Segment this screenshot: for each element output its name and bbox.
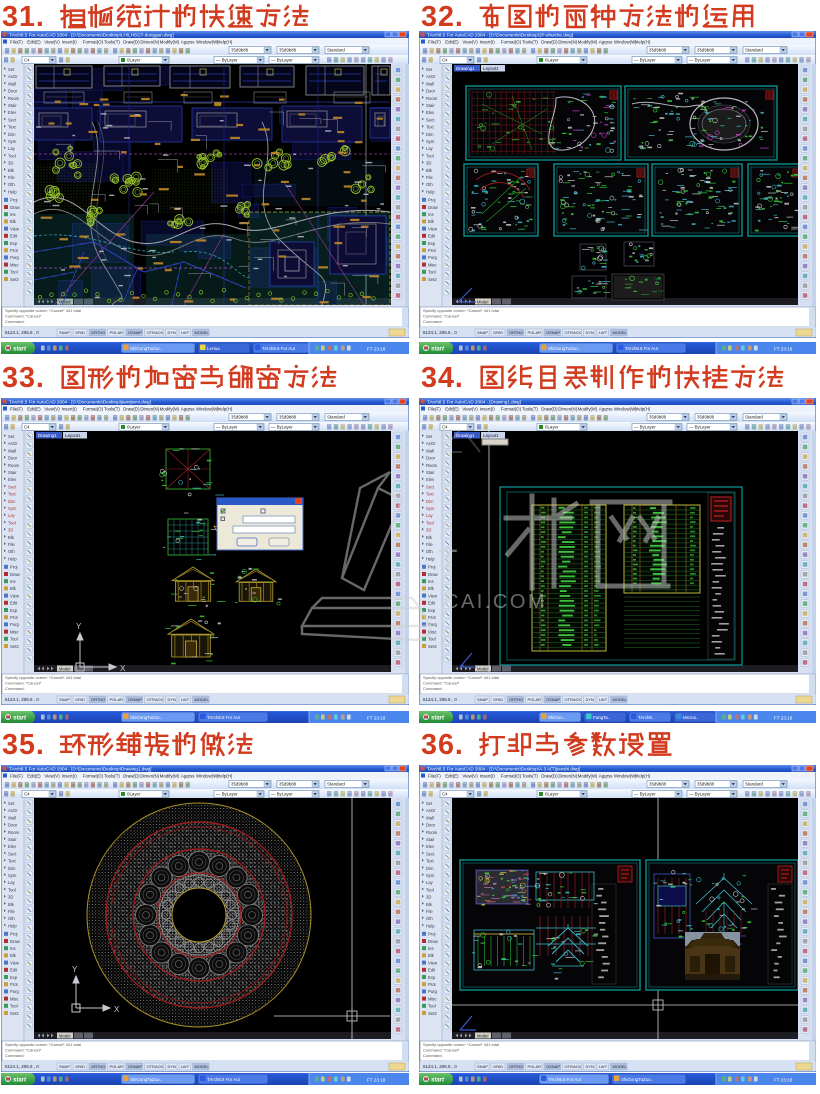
svg-text:Specify opposite corner: *Canc: Specify opposite corner: *Cancel* 441 to… bbox=[423, 675, 499, 680]
svg-text:Specify opposite corner: *Canc: Specify opposite corner: *Cancel* 441 to… bbox=[423, 1042, 499, 1047]
svg-text:Tool: Tool bbox=[426, 520, 434, 525]
svg-text:Help(H): Help(H) bbox=[217, 39, 233, 44]
svg-text:TArch8.5 For AutoCAD 2004 - [D: TArch8.5 For AutoCAD 2004 - [D:\Document… bbox=[427, 32, 573, 37]
svg-text:0Layer: 0Layer bbox=[545, 58, 559, 63]
svg-text:Elev: Elev bbox=[426, 110, 435, 115]
svg-text:Modify(M): Modify(M) bbox=[160, 773, 180, 778]
svg-text:Set3: Set3 bbox=[428, 1011, 437, 1016]
svg-text:Y: Y bbox=[76, 622, 82, 631]
svg-text:Specify opposite corner: *Canc: Specify opposite corner: *Cancel* 441 to… bbox=[423, 308, 499, 313]
svg-text:Dim: Dim bbox=[8, 866, 16, 871]
svg-text:Blk: Blk bbox=[428, 586, 435, 591]
svg-text:Edit: Edit bbox=[10, 601, 18, 606]
svg-text:ShiGon..: ShiGon.. bbox=[548, 715, 565, 720]
svg-text:Blk: Blk bbox=[8, 535, 15, 540]
svg-text:FT 23:18: FT 23:18 bbox=[774, 1077, 793, 1082]
svg-text:ORTHO: ORTHO bbox=[91, 697, 105, 702]
svg-text:Blk: Blk bbox=[426, 168, 433, 173]
svg-text:0Layer: 0Layer bbox=[127, 58, 141, 63]
svg-text:SNAP: SNAP bbox=[477, 1064, 488, 1069]
svg-text:Wall: Wall bbox=[8, 448, 16, 453]
svg-text:File: File bbox=[8, 175, 15, 180]
svg-text:Proj: Proj bbox=[428, 932, 436, 937]
svg-text:6124.1, 206.6 , 0: 6124.1, 206.6 , 0 bbox=[423, 1064, 457, 1069]
svg-text:Elev: Elev bbox=[8, 110, 17, 115]
svg-text:6124.1, 206.6 , 0: 6124.1, 206.6 , 0 bbox=[5, 697, 39, 702]
svg-text:Misc: Misc bbox=[10, 996, 19, 1001]
svg-text:Tool: Tool bbox=[428, 270, 436, 275]
svg-text:MODEL: MODEL bbox=[195, 697, 210, 702]
svg-text:Blk: Blk bbox=[8, 168, 15, 173]
svg-text:OSNAP: OSNAP bbox=[128, 697, 142, 702]
svg-text:DYN: DYN bbox=[168, 1064, 177, 1069]
svg-text:Tools(T): Tools(T) bbox=[104, 773, 120, 778]
svg-text:Exp: Exp bbox=[428, 241, 436, 246]
svg-text:— ByLayer: — ByLayer bbox=[216, 58, 238, 63]
svg-text:Blk: Blk bbox=[10, 953, 17, 958]
svg-text:Proj: Proj bbox=[428, 198, 436, 203]
svg-text:Help(H): Help(H) bbox=[635, 406, 651, 411]
svg-text:View(V): View(V) bbox=[462, 773, 478, 778]
svg-text:GRID: GRID bbox=[493, 697, 503, 702]
svg-text:Set3: Set3 bbox=[428, 644, 437, 649]
svg-text:ShiGongTuZuo..: ShiGongTuZuo.. bbox=[130, 346, 162, 351]
svg-text:Insert(I): Insert(I) bbox=[62, 406, 78, 411]
svg-text:0Layer: 0Layer bbox=[545, 792, 559, 797]
svg-text:Dim: Dim bbox=[8, 499, 16, 504]
svg-text:File: File bbox=[8, 909, 15, 914]
svg-text:TArch8.5 For AutoCAD 2004 - [D: TArch8.5 For AutoCAD 2004 - [D:\Document… bbox=[427, 766, 580, 771]
svg-text:Door: Door bbox=[426, 823, 436, 828]
svg-text:Dimen(N): Dimen(N) bbox=[558, 773, 577, 778]
svg-text:Draw: Draw bbox=[10, 205, 21, 210]
svg-text:Exp: Exp bbox=[428, 608, 436, 613]
svg-text:OTRACK: OTRACK bbox=[147, 330, 164, 335]
svg-text:— ByLayer: — ByLayer bbox=[689, 58, 711, 63]
svg-text:Window(W): Window(W) bbox=[196, 406, 219, 411]
svg-text:SNAP: SNAP bbox=[59, 1064, 70, 1069]
svg-text:Draw: Draw bbox=[10, 939, 21, 944]
svg-text:35d9b88: 35d9b88 bbox=[649, 48, 667, 53]
svg-text:start: start bbox=[431, 716, 445, 722]
svg-text:Help(H): Help(H) bbox=[635, 773, 651, 778]
svg-text:Agqrss: Agqrss bbox=[181, 406, 195, 411]
svg-text:Exp: Exp bbox=[10, 608, 18, 613]
svg-text:LvHua: LvHua bbox=[207, 346, 220, 351]
svg-text:Command: *Cancel*: Command: *Cancel* bbox=[423, 314, 460, 319]
svg-text:Command: *Cancel*: Command: *Cancel* bbox=[5, 681, 42, 686]
svg-text:Format(O): Format(O) bbox=[501, 773, 522, 778]
svg-text:Room: Room bbox=[8, 96, 20, 101]
svg-text:Draw(D): Draw(D) bbox=[541, 773, 558, 778]
svg-text:3D: 3D bbox=[426, 895, 431, 900]
svg-text:Purg: Purg bbox=[428, 622, 438, 627]
svg-text:33.: 33. bbox=[2, 363, 45, 393]
svg-text:Edit: Edit bbox=[428, 968, 436, 973]
svg-text:Blk: Blk bbox=[428, 953, 435, 958]
svg-text:35d9b88: 35d9b88 bbox=[231, 415, 249, 420]
svg-text:DYN: DYN bbox=[586, 1064, 595, 1069]
svg-text:Lay: Lay bbox=[426, 513, 434, 518]
svg-text:Elev: Elev bbox=[8, 844, 17, 849]
svg-text:Sym: Sym bbox=[8, 139, 17, 144]
svg-text:— ByLayer: — ByLayer bbox=[634, 425, 656, 430]
svg-text:Draw: Draw bbox=[428, 939, 439, 944]
svg-text:Agqrss: Agqrss bbox=[599, 406, 613, 411]
svg-text:Dim: Dim bbox=[426, 132, 434, 137]
svg-text:POLAR: POLAR bbox=[528, 697, 542, 702]
svg-text:35d9b88: 35d9b88 bbox=[279, 48, 297, 53]
svg-text:Help(H): Help(H) bbox=[217, 773, 233, 778]
svg-text:SNAP: SNAP bbox=[477, 697, 488, 702]
svg-text:Edit: Edit bbox=[10, 968, 18, 973]
svg-text:35d9b88: 35d9b88 bbox=[649, 782, 667, 787]
svg-text:POLAR: POLAR bbox=[528, 330, 542, 335]
svg-text:X: X bbox=[114, 1005, 120, 1014]
svg-text:LWT: LWT bbox=[181, 697, 190, 702]
svg-text:View: View bbox=[428, 593, 438, 598]
svg-text:FT 23:18: FT 23:18 bbox=[367, 1077, 386, 1082]
svg-text:Command:: Command: bbox=[5, 1053, 25, 1058]
svg-text:OSNAP: OSNAP bbox=[128, 330, 142, 335]
svg-text:Draw: Draw bbox=[10, 572, 21, 577]
svg-text:Layout1: Layout1 bbox=[483, 433, 499, 438]
svg-text:— ByLayer: — ByLayer bbox=[689, 792, 711, 797]
svg-text:C4: C4 bbox=[442, 425, 448, 430]
svg-text:Draw: Draw bbox=[428, 205, 439, 210]
svg-text:OSNAP: OSNAP bbox=[128, 1064, 142, 1069]
svg-text:Tools(T): Tools(T) bbox=[522, 773, 538, 778]
svg-text:Text: Text bbox=[426, 125, 435, 130]
svg-text:Elev: Elev bbox=[8, 477, 17, 482]
svg-text:Command:: Command: bbox=[423, 686, 443, 691]
svg-text:Tool: Tool bbox=[8, 887, 16, 892]
svg-text:Misc: Misc bbox=[10, 262, 19, 267]
svg-text:Dim: Dim bbox=[8, 132, 16, 137]
svg-text:Prot: Prot bbox=[10, 248, 19, 253]
svg-text:ORTHO: ORTHO bbox=[509, 697, 523, 702]
svg-text:Edit(E): Edit(E) bbox=[445, 39, 459, 44]
svg-text:Proj: Proj bbox=[428, 565, 436, 570]
svg-text:Room: Room bbox=[8, 830, 20, 835]
svg-text:Oth: Oth bbox=[8, 916, 15, 921]
svg-text:35d9b88: 35d9b88 bbox=[279, 415, 297, 420]
svg-text:36.: 36. bbox=[421, 730, 464, 760]
svg-text:Oth: Oth bbox=[426, 549, 433, 554]
svg-text:POLAR: POLAR bbox=[110, 1064, 124, 1069]
svg-text:Set3: Set3 bbox=[10, 1011, 19, 1016]
svg-text:35.: 35. bbox=[2, 730, 45, 760]
svg-text:Blk: Blk bbox=[426, 902, 433, 907]
svg-text:Agqrss: Agqrss bbox=[181, 39, 195, 44]
svg-text:Window(W): Window(W) bbox=[614, 406, 637, 411]
svg-text:Tool: Tool bbox=[10, 637, 18, 642]
svg-text:Tool: Tool bbox=[426, 153, 434, 158]
svg-text:Set: Set bbox=[8, 434, 15, 439]
svg-text:LWT: LWT bbox=[599, 330, 608, 335]
svg-text:AxGr: AxGr bbox=[426, 441, 436, 446]
svg-text:View: View bbox=[428, 226, 438, 231]
svg-text:Purg: Purg bbox=[10, 255, 20, 260]
svg-text:Draw: Draw bbox=[428, 572, 439, 577]
svg-text:Lay: Lay bbox=[8, 513, 16, 518]
svg-text:Purg: Purg bbox=[10, 989, 20, 994]
svg-text:ShiGongTuZuo..: ShiGongTuZuo.. bbox=[130, 715, 162, 720]
svg-text:Command:: Command: bbox=[423, 319, 443, 324]
svg-text:Dim: Dim bbox=[426, 866, 434, 871]
svg-text:File(F): File(F) bbox=[428, 406, 441, 411]
svg-text:Help: Help bbox=[8, 189, 17, 194]
svg-text:Door: Door bbox=[8, 456, 18, 461]
svg-text:Insert(I): Insert(I) bbox=[480, 406, 496, 411]
svg-text:Edit: Edit bbox=[428, 601, 436, 606]
svg-text:3D: 3D bbox=[426, 528, 431, 533]
svg-text:Sym: Sym bbox=[426, 139, 435, 144]
svg-text:Edit(E): Edit(E) bbox=[27, 406, 41, 411]
svg-text:ORTHO: ORTHO bbox=[509, 330, 523, 335]
svg-text:Standard: Standard bbox=[745, 48, 763, 53]
svg-text:SNAP: SNAP bbox=[477, 330, 488, 335]
svg-text:Prot: Prot bbox=[428, 982, 437, 987]
svg-text:Ins: Ins bbox=[428, 579, 434, 584]
svg-text:Sect: Sect bbox=[426, 117, 435, 122]
svg-text:Tool: Tool bbox=[8, 520, 16, 525]
svg-text:Window(W): Window(W) bbox=[614, 773, 637, 778]
svg-text:Blk: Blk bbox=[10, 586, 17, 591]
svg-text:TArch8.5 For AutoCAD 2004 - [D: TArch8.5 For AutoCAD 2004 - [D:\Document… bbox=[9, 399, 151, 404]
svg-text:File(F): File(F) bbox=[428, 39, 441, 44]
svg-text:Draw(D): Draw(D) bbox=[123, 39, 140, 44]
svg-text:DYN: DYN bbox=[168, 697, 177, 702]
svg-text:Tool: Tool bbox=[10, 1004, 18, 1009]
svg-text:Text: Text bbox=[8, 492, 17, 497]
svg-text:FangTa..: FangTa.. bbox=[593, 715, 610, 720]
svg-text:Blk: Blk bbox=[426, 535, 433, 540]
svg-text:Format(O): Format(O) bbox=[501, 406, 522, 411]
svg-text:Standard: Standard bbox=[327, 782, 345, 787]
svg-text:File(F): File(F) bbox=[10, 773, 23, 778]
svg-text:Help: Help bbox=[426, 556, 435, 561]
svg-text:Format(O): Format(O) bbox=[83, 406, 104, 411]
svg-text:6124.1, 206.6 , 0: 6124.1, 206.6 , 0 bbox=[5, 1064, 39, 1069]
svg-text:TArch8..: TArch8.. bbox=[638, 715, 654, 720]
svg-text:Layout1: Layout1 bbox=[483, 66, 499, 71]
svg-text:Proj: Proj bbox=[10, 565, 18, 570]
svg-text:Layout1: Layout1 bbox=[65, 433, 81, 438]
svg-text:Tool: Tool bbox=[428, 637, 436, 642]
svg-text:Set: Set bbox=[8, 67, 15, 72]
svg-text:OSNAP: OSNAP bbox=[546, 697, 560, 702]
svg-text:Edit(E): Edit(E) bbox=[27, 39, 41, 44]
svg-text:— ByLayer: — ByLayer bbox=[271, 425, 293, 430]
svg-text:ORTHO: ORTHO bbox=[91, 330, 105, 335]
svg-text:File(F): File(F) bbox=[428, 773, 441, 778]
svg-text:TArch8.5 For Aut: TArch8.5 For Aut bbox=[207, 715, 241, 720]
svg-text:GRID: GRID bbox=[75, 1064, 85, 1069]
svg-text:start: start bbox=[431, 1078, 445, 1084]
svg-text:OTRACK: OTRACK bbox=[147, 697, 164, 702]
svg-text:Modify(M): Modify(M) bbox=[578, 406, 598, 411]
svg-text:LWT: LWT bbox=[599, 1064, 608, 1069]
svg-text:32.: 32. bbox=[421, 2, 464, 32]
svg-text:Edit: Edit bbox=[10, 234, 18, 239]
svg-text:Command: *Cancel*: Command: *Cancel* bbox=[5, 314, 42, 319]
svg-text:— ByLayer: — ByLayer bbox=[634, 792, 656, 797]
svg-text:Stair: Stair bbox=[426, 837, 435, 842]
svg-text:Edit(E): Edit(E) bbox=[27, 773, 41, 778]
svg-text:Wall: Wall bbox=[426, 448, 434, 453]
svg-text:Oth: Oth bbox=[426, 182, 433, 187]
svg-text:start: start bbox=[13, 716, 27, 722]
svg-text:6124.1, 206.6 , 0: 6124.1, 206.6 , 0 bbox=[5, 330, 39, 335]
svg-text:Help(H): Help(H) bbox=[635, 39, 651, 44]
svg-text:Dimen(N): Dimen(N) bbox=[140, 406, 159, 411]
svg-text:Specify opposite corner: *Canc: Specify opposite corner: *Cancel* 441 to… bbox=[5, 308, 81, 313]
svg-text:TArch8.5 For Aut: TArch8.5 For Aut bbox=[548, 1077, 582, 1082]
svg-text:Drawing1: Drawing1 bbox=[38, 433, 57, 438]
svg-text:34.: 34. bbox=[421, 363, 464, 393]
svg-text:Command:: Command: bbox=[423, 1053, 443, 1058]
svg-text:X: X bbox=[120, 664, 126, 672]
svg-text:— ByLayer: — ByLayer bbox=[271, 58, 293, 63]
svg-text:Purg: Purg bbox=[428, 255, 438, 260]
svg-text:Help(H): Help(H) bbox=[217, 406, 233, 411]
svg-text:DYN: DYN bbox=[168, 330, 177, 335]
svg-text:Purg: Purg bbox=[428, 989, 438, 994]
svg-text:35d9b88: 35d9b88 bbox=[649, 415, 667, 420]
svg-text:File: File bbox=[426, 542, 433, 547]
svg-text:start: start bbox=[431, 347, 445, 353]
svg-text:Exp: Exp bbox=[10, 241, 18, 246]
svg-text:Misc: Misc bbox=[10, 629, 19, 634]
svg-text:FT 23:18: FT 23:18 bbox=[367, 346, 386, 351]
svg-text:Wall: Wall bbox=[426, 81, 434, 86]
svg-text:Standard: Standard bbox=[745, 415, 763, 420]
svg-text:ORTHO: ORTHO bbox=[509, 1064, 523, 1069]
svg-text:Sym: Sym bbox=[8, 506, 17, 511]
svg-text:Modify(M): Modify(M) bbox=[578, 39, 598, 44]
svg-text:Blk: Blk bbox=[10, 219, 17, 224]
svg-text:ORTHO: ORTHO bbox=[91, 1064, 105, 1069]
svg-text:Door: Door bbox=[8, 823, 18, 828]
svg-text:ShiGongTuZuo..: ShiGongTuZuo.. bbox=[548, 346, 580, 351]
svg-text:6124.1, 206.6 , 0: 6124.1, 206.6 , 0 bbox=[423, 697, 457, 702]
svg-text:Help: Help bbox=[426, 189, 435, 194]
svg-text:Stair: Stair bbox=[426, 103, 435, 108]
svg-text:start: start bbox=[13, 1078, 27, 1084]
svg-text:TArch8.5 For AutoCAD 2004 - [D: TArch8.5 For AutoCAD 2004 - [D:\Document… bbox=[9, 766, 151, 771]
svg-text:Help: Help bbox=[426, 923, 435, 928]
svg-text:Sect: Sect bbox=[8, 117, 17, 122]
svg-text:0Layer: 0Layer bbox=[127, 792, 141, 797]
svg-text:MODEL: MODEL bbox=[195, 330, 210, 335]
svg-text:Misc: Misc bbox=[428, 629, 437, 634]
svg-text:Window(W): Window(W) bbox=[196, 773, 219, 778]
svg-text:Help: Help bbox=[8, 923, 17, 928]
svg-text:6124.1, 206.6 , 0: 6124.1, 206.6 , 0 bbox=[423, 330, 457, 335]
svg-text:LWT: LWT bbox=[599, 697, 608, 702]
svg-text:Exp: Exp bbox=[428, 975, 436, 980]
svg-text:Command: *Cancel*: Command: *Cancel* bbox=[423, 681, 460, 686]
svg-text:Room: Room bbox=[8, 463, 20, 468]
svg-text:Draw(D): Draw(D) bbox=[123, 773, 140, 778]
svg-text:POLAR: POLAR bbox=[528, 1064, 542, 1069]
svg-text:Tools(T): Tools(T) bbox=[522, 39, 538, 44]
svg-text:Ins: Ins bbox=[428, 212, 434, 217]
svg-text:Draw(D): Draw(D) bbox=[541, 406, 558, 411]
svg-text:DYN: DYN bbox=[586, 330, 595, 335]
svg-text:Tools(T): Tools(T) bbox=[104, 39, 120, 44]
svg-text:Prot: Prot bbox=[428, 615, 437, 620]
svg-text:Tool: Tool bbox=[8, 153, 16, 158]
svg-text:Dimen(N): Dimen(N) bbox=[140, 39, 159, 44]
svg-text:AxGr: AxGr bbox=[8, 74, 18, 79]
svg-text:ShiGongTuZuo..: ShiGongTuZuo.. bbox=[621, 1077, 653, 1082]
svg-text:Format(O): Format(O) bbox=[83, 773, 104, 778]
svg-text:View: View bbox=[10, 593, 20, 598]
svg-text:Ins: Ins bbox=[428, 946, 434, 951]
svg-text:Dim: Dim bbox=[426, 499, 434, 504]
svg-text:Stair: Stair bbox=[8, 837, 17, 842]
svg-text:Specify opposite corner: *Canc: Specify opposite corner: *Cancel* 441 to… bbox=[5, 675, 81, 680]
svg-text:C4: C4 bbox=[442, 58, 448, 63]
svg-text:Insert(I): Insert(I) bbox=[480, 39, 496, 44]
svg-text:Window(W): Window(W) bbox=[614, 39, 637, 44]
svg-text:Modify(M): Modify(M) bbox=[160, 406, 180, 411]
svg-text:Tool: Tool bbox=[10, 270, 18, 275]
svg-text:Edit(E): Edit(E) bbox=[445, 406, 459, 411]
svg-text:3D: 3D bbox=[426, 161, 431, 166]
svg-text:Agqrss: Agqrss bbox=[181, 773, 195, 778]
svg-text:Text: Text bbox=[8, 125, 17, 130]
svg-text:start: start bbox=[13, 347, 27, 353]
svg-text:Help: Help bbox=[8, 556, 17, 561]
svg-text:GRID: GRID bbox=[75, 330, 85, 335]
svg-text:Lay: Lay bbox=[426, 880, 434, 885]
svg-text:Dimen(N): Dimen(N) bbox=[558, 406, 577, 411]
svg-text:Sect: Sect bbox=[8, 484, 17, 489]
svg-text:— ByLayer: — ByLayer bbox=[634, 58, 656, 63]
svg-text:Wall: Wall bbox=[8, 81, 16, 86]
svg-text:SNAP: SNAP bbox=[59, 697, 70, 702]
svg-text:Ins: Ins bbox=[10, 946, 16, 951]
svg-text:Tools(T): Tools(T) bbox=[104, 406, 120, 411]
svg-text:Stair: Stair bbox=[426, 470, 435, 475]
svg-text:Y: Y bbox=[72, 965, 78, 974]
svg-text:Ins: Ins bbox=[10, 212, 16, 217]
svg-text:Sym: Sym bbox=[426, 873, 435, 878]
svg-text:Misc: Misc bbox=[428, 262, 437, 267]
svg-text:MODEL: MODEL bbox=[613, 1064, 628, 1069]
svg-text:DYN: DYN bbox=[586, 697, 595, 702]
svg-text:Room: Room bbox=[426, 96, 438, 101]
svg-text:POLAR: POLAR bbox=[110, 697, 124, 702]
svg-text:TArch8.5 For Aut: TArch8.5 For Aut bbox=[625, 346, 659, 351]
svg-text:Specify opposite corner: *Canc: Specify opposite corner: *Cancel* 441 to… bbox=[5, 1042, 81, 1047]
svg-text:OTRACK: OTRACK bbox=[565, 330, 582, 335]
svg-text:GRID: GRID bbox=[493, 330, 503, 335]
svg-text:AxGr: AxGr bbox=[426, 74, 436, 79]
svg-text:— ByLayer: — ByLayer bbox=[216, 792, 238, 797]
svg-text:View: View bbox=[428, 960, 438, 965]
svg-text:Prot: Prot bbox=[428, 248, 437, 253]
svg-text:35d9b88: 35d9b88 bbox=[697, 782, 715, 787]
svg-text:OTRACK: OTRACK bbox=[565, 697, 582, 702]
svg-text:Exp: Exp bbox=[10, 975, 18, 980]
svg-text:C4: C4 bbox=[442, 792, 448, 797]
svg-text:MODEL: MODEL bbox=[613, 697, 628, 702]
svg-text:Set3: Set3 bbox=[10, 277, 19, 282]
